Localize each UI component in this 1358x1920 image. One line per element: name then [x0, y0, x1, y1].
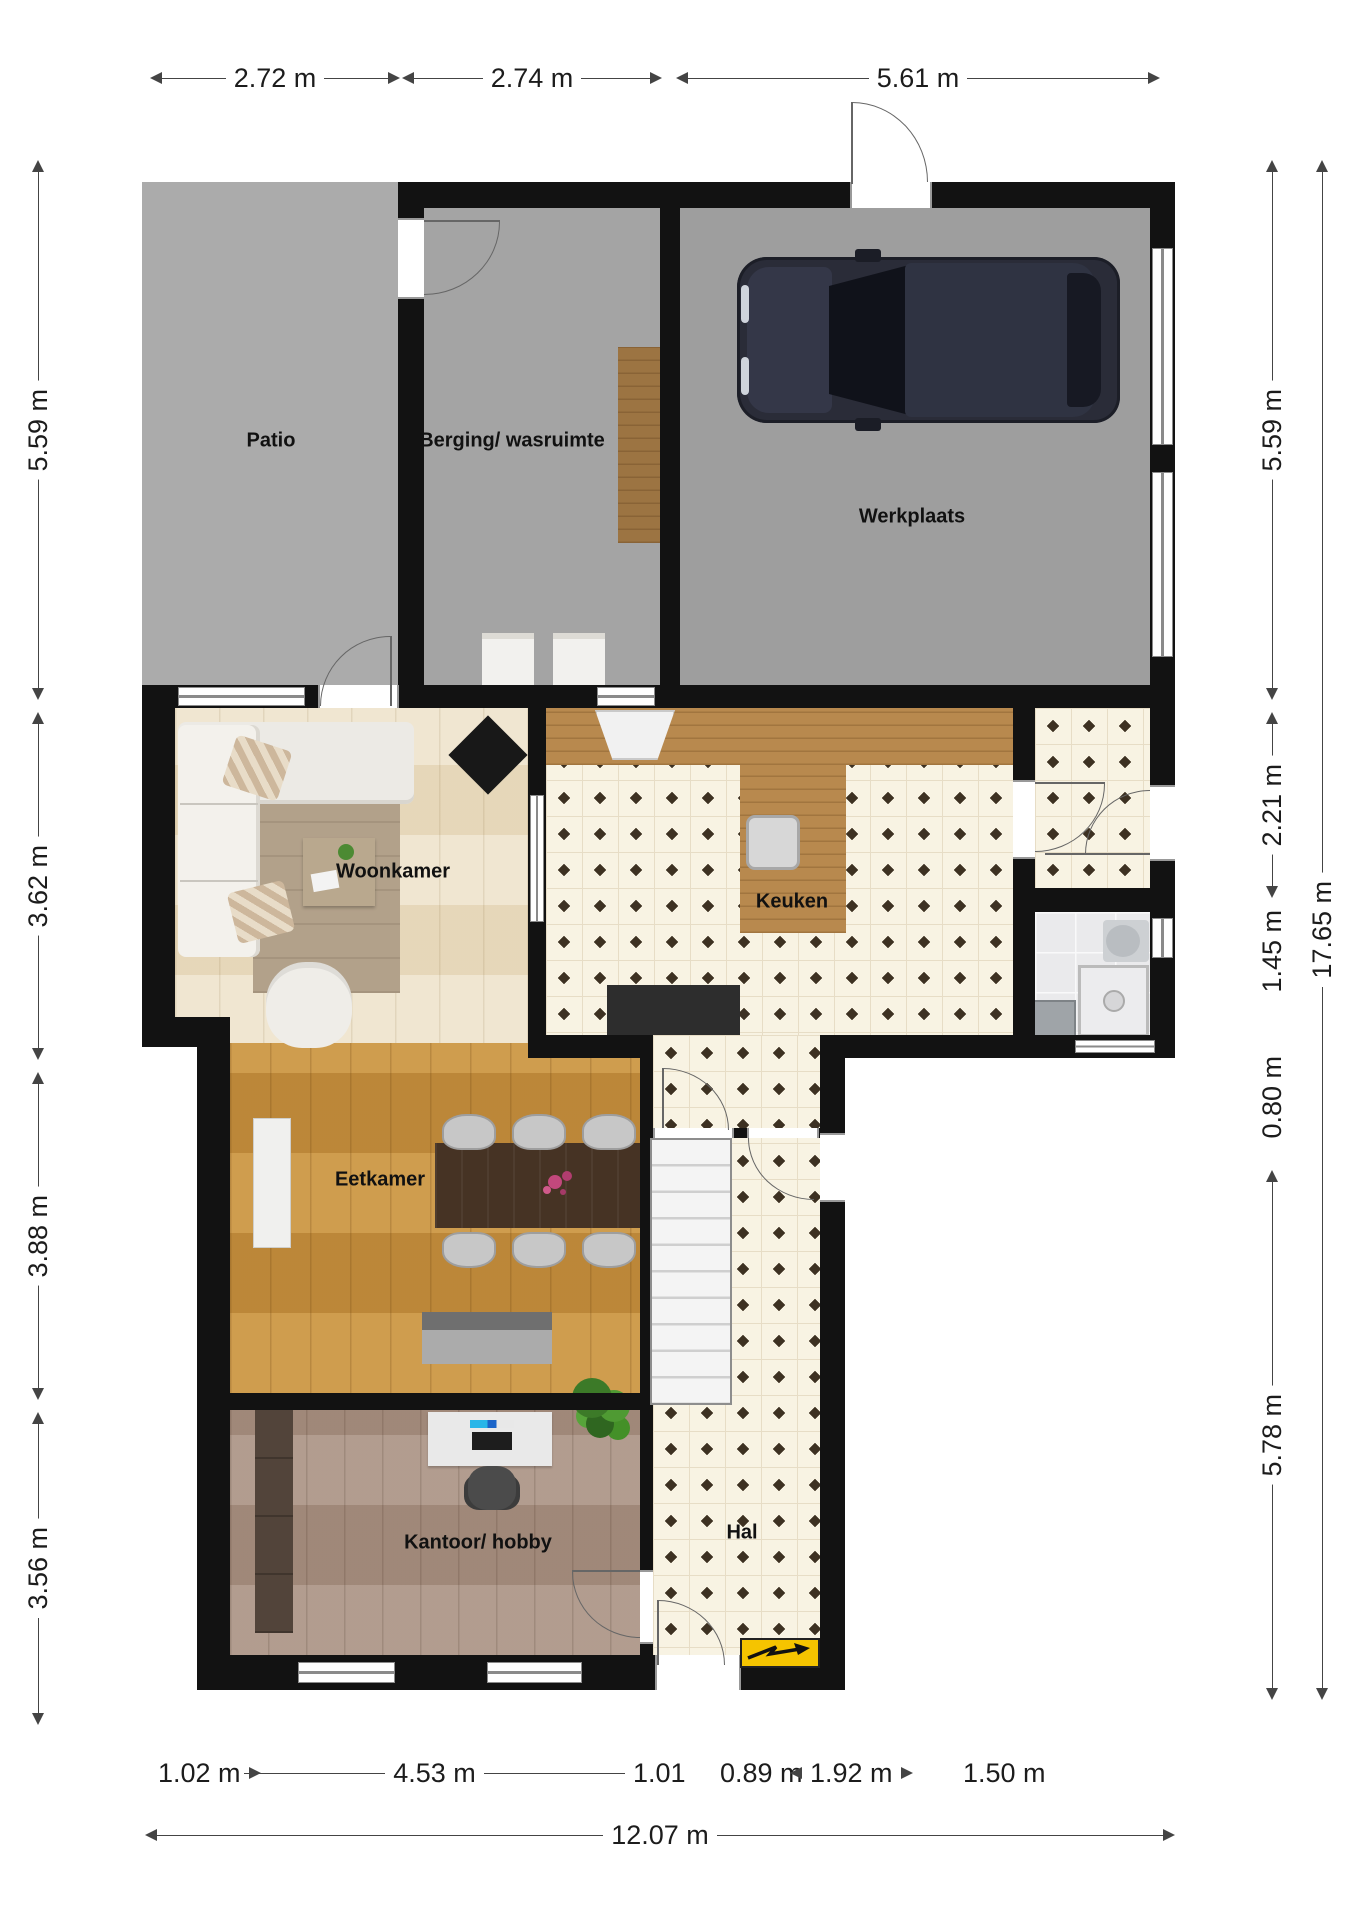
dim-label: 3.56 m — [23, 1519, 54, 1618]
dim-bottom-5: 1.92 m — [790, 1759, 955, 1787]
dim-label: 2.74 m — [483, 63, 582, 94]
werkplaats-window-1 — [1152, 248, 1173, 445]
arrow-left-icon — [790, 1767, 802, 1779]
bottom-right-window — [1075, 1040, 1155, 1053]
dim-bottom-3: 1.01 — [625, 1759, 712, 1787]
sofa-cushion-line-1 — [180, 803, 258, 805]
arrow-down-icon — [1266, 688, 1278, 700]
arrow-down-icon — [1266, 1688, 1278, 1700]
car-mirror-bottom — [855, 418, 881, 431]
car-headlight-top — [741, 285, 749, 323]
side-door-opening — [820, 1133, 845, 1202]
kitchen-island-black — [607, 985, 740, 1035]
floorplan-canvas: Patio Berging/ wasruimte Werkplaats Woon… — [0, 0, 1358, 1920]
sideboard-dark — [255, 1400, 293, 1633]
dim-bottom-6: 1.50 m — [955, 1759, 1085, 1787]
arrow-right-icon — [650, 72, 662, 84]
room-label-kantoor: Kantoor/ hobby — [404, 1532, 552, 1555]
arrow-up-icon — [32, 712, 44, 724]
dim-label: 1.01 — [625, 1758, 694, 1789]
dim-label: 2.72 m — [226, 63, 325, 94]
office-chair — [468, 1466, 516, 1510]
dining-flowers — [548, 1175, 562, 1189]
arrow-down-icon — [1266, 886, 1278, 898]
desk-keyboard — [470, 1420, 514, 1428]
toilet-bowl — [1106, 925, 1140, 957]
dim-label: 1.92 m — [802, 1758, 901, 1789]
dim-label: 3.62 m — [23, 837, 54, 936]
coffee-table-plant — [338, 844, 354, 860]
car-hood — [747, 267, 832, 413]
arrow-up-icon — [32, 1072, 44, 1084]
kantoor-window-2 — [487, 1662, 582, 1683]
car-windshield — [829, 265, 909, 415]
dim-left-3: 3.88 m — [24, 1072, 52, 1400]
room-label-woonkamer: Woonkamer — [336, 861, 450, 884]
wall-berging-werkplaats — [660, 208, 680, 705]
arrow-up-icon — [32, 160, 44, 172]
bathroom-cabinet — [1030, 1000, 1076, 1037]
dim-top-1: 2.72 m — [150, 64, 400, 92]
shower-drain — [1103, 990, 1125, 1012]
wall-right-lower — [1150, 700, 1175, 1058]
arrow-right-icon — [901, 1767, 913, 1779]
room-label-patio: Patio — [247, 430, 296, 453]
wall-left-upper — [142, 685, 175, 1047]
hal-door-frame — [747, 1128, 819, 1138]
keuken-top-window — [597, 687, 655, 706]
arrow-left-icon — [145, 1829, 157, 1841]
car-mirror-top — [855, 249, 881, 262]
arrow-down-icon — [32, 1713, 44, 1725]
dim-label: 1.50 m — [955, 1758, 1054, 1789]
staircase — [650, 1138, 732, 1405]
dim-bottom-1: 1.02 m — [150, 1759, 240, 1787]
dining-chair — [582, 1232, 636, 1268]
arrow-up-icon — [1266, 712, 1278, 724]
dim-label: 1.45 m — [1257, 902, 1288, 1001]
dim-left-4: 3.56 m — [24, 1412, 52, 1725]
dim-label: 5.59 m — [23, 381, 54, 480]
room-label-berging: Berging/ wasruimte — [419, 430, 605, 453]
armchair — [266, 962, 352, 1048]
washing-machine-2 — [553, 633, 605, 687]
sofa-cushion-line-2 — [180, 880, 258, 882]
dim-top-2: 2.74 m — [402, 64, 662, 92]
car-top-view — [737, 257, 1120, 423]
bathroom-window — [1152, 918, 1173, 958]
dim-label: 0.80 m — [1257, 1048, 1288, 1147]
dining-chair — [442, 1114, 496, 1150]
wall-keuken-bottom-left — [528, 1035, 653, 1058]
dim-label: 5.59 m — [1257, 381, 1288, 480]
arrow-down-icon — [1316, 1688, 1328, 1700]
room-label-keuken: Keuken — [756, 891, 828, 914]
kantoor-door-opening — [640, 1570, 653, 1644]
dim-left-1: 5.59 m — [24, 160, 52, 700]
patio-door-leaf — [390, 636, 392, 706]
kitchen-sink — [746, 815, 800, 870]
room-label-eetkamer: Eetkamer — [335, 1169, 425, 1192]
dining-chair — [442, 1232, 496, 1268]
dim-label: 17.65 m — [1307, 873, 1338, 987]
arrow-up-icon — [1316, 160, 1328, 172]
kantoor-window-1 — [298, 1662, 395, 1683]
arrow-left-icon — [150, 72, 162, 84]
dim-bottom-2: 4.53 m — [244, 1759, 625, 1787]
dim-top-3: 5.61 m — [676, 64, 1160, 92]
berging-door-opening — [398, 218, 424, 299]
dim-right-3: 1.45 m — [1258, 902, 1286, 1044]
arrow-up-icon — [1266, 1170, 1278, 1182]
car-rear-window — [1067, 273, 1101, 407]
arrow-up-icon — [32, 1412, 44, 1424]
vestibule-keuken-door-opening — [1013, 780, 1035, 859]
room-label-hal: Hal — [726, 1522, 757, 1545]
arrow-right-icon — [388, 72, 400, 84]
wall-eetkamer-kantoor — [197, 1393, 653, 1410]
dim-right-2: 2.21 m — [1258, 712, 1286, 898]
arrow-down-icon — [32, 1388, 44, 1400]
dim-label: 1.02 m — [150, 1758, 249, 1789]
entrance-door-opening — [1150, 785, 1175, 861]
berging-cabinet — [618, 347, 660, 543]
keuken-serving-window — [530, 795, 544, 922]
werkplaats-window-2 — [1152, 472, 1173, 657]
dining-table — [435, 1143, 640, 1228]
dining-chair — [512, 1232, 566, 1268]
car-headlight-bottom — [741, 357, 749, 395]
meter-box — [740, 1638, 820, 1668]
arrow-left-icon — [676, 72, 688, 84]
dining-chair — [512, 1114, 566, 1150]
dim-label: 5.78 m — [1257, 1386, 1288, 1485]
room-label-werkplaats: Werkplaats — [859, 506, 965, 529]
dim-label: 5.61 m — [869, 63, 968, 94]
dim-label: 12.07 m — [603, 1820, 717, 1851]
dim-label: 3.88 m — [23, 1187, 54, 1286]
dim-label: 4.53 m — [385, 1758, 484, 1789]
washing-machine-1 — [482, 633, 534, 687]
woonkamer-window — [178, 687, 305, 706]
dim-right-total: 17.65 m — [1308, 160, 1336, 1700]
dim-right-5: 5.78 m — [1258, 1170, 1286, 1700]
desk-monitor — [472, 1432, 512, 1450]
garage-door-opening — [850, 182, 932, 208]
wall-vestibule-bathroom — [1013, 888, 1175, 912]
arrow-down-icon — [32, 688, 44, 700]
dim-right-4: 0.80 m — [1258, 1048, 1286, 1166]
arrow-right-icon — [1163, 1829, 1175, 1841]
dim-right-1: 5.59 m — [1258, 160, 1286, 700]
wall-vestibule-left — [1013, 708, 1035, 1035]
garage-door-arc — [852, 102, 928, 182]
sideboard-white — [253, 1118, 291, 1248]
dim-label: 2.21 m — [1257, 756, 1288, 855]
arrow-left-icon — [402, 72, 414, 84]
electric-meter-zigzag-arrow-icon — [742, 1640, 818, 1666]
wall-top — [398, 182, 1175, 208]
dim-bottom-total: 12.07 m — [145, 1821, 1175, 1849]
arrow-right-icon — [1148, 72, 1160, 84]
dim-bottom-4: 0.89 m — [712, 1759, 790, 1787]
arrow-up-icon — [1266, 160, 1278, 172]
dining-chair — [582, 1114, 636, 1150]
cabinet-gray — [422, 1312, 552, 1364]
wall-left-lower — [197, 1017, 230, 1690]
dim-left-2: 3.62 m — [24, 712, 52, 1060]
arrow-down-icon — [32, 1048, 44, 1060]
